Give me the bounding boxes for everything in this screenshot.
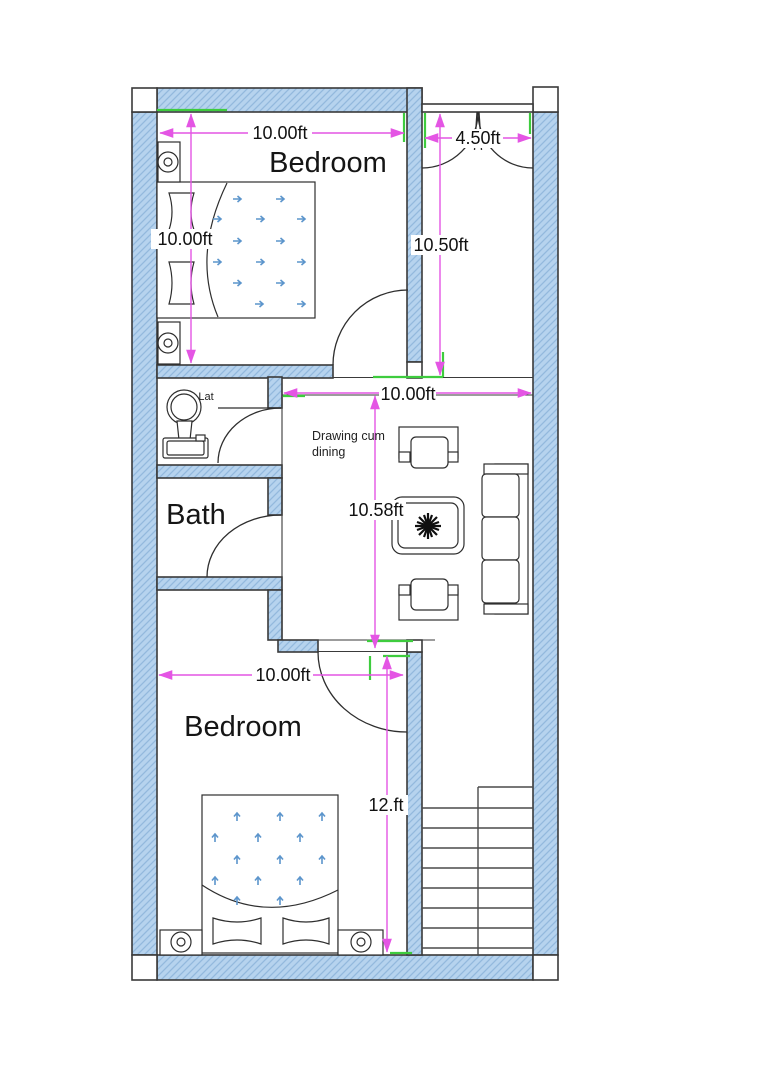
staircase [422, 787, 533, 955]
corner-column-top-left [132, 88, 157, 112]
nightstand [338, 930, 383, 955]
drawing-room-label: dining [312, 445, 345, 459]
dim-label: 4.50ft [455, 128, 500, 148]
drawing-room-label: Drawing cum [312, 429, 385, 443]
dim-label: 12.ft [368, 795, 403, 815]
corner-column-top-right [533, 87, 558, 112]
door-arc-icon [218, 408, 281, 463]
floor-plan-drawing: 10.00ft 10.00ft 4.50ft 10.50ft 10.00ft 1… [0, 0, 768, 1087]
dimension-entry-width: 4.50ft [425, 128, 531, 148]
wall-right [533, 112, 558, 955]
lat-door [218, 408, 281, 463]
wall-bath-right-upper [268, 478, 282, 515]
dimension-bedroom-bottom-width: 10.00ft [159, 665, 403, 685]
nightstand [160, 930, 202, 955]
sofa-cushion [482, 560, 519, 603]
corner-column-bottom-right [533, 955, 558, 980]
wall-lat-right-upper [268, 377, 282, 408]
wall-bottom [157, 955, 533, 980]
dimension-bedroom-bottom-height: 12.ft [364, 656, 408, 952]
armchair [399, 427, 458, 468]
dim-label: 10.00ft [157, 229, 212, 249]
bath-label: Bath [166, 499, 226, 531]
dimension-drawing-width: 10.00ft [284, 384, 531, 404]
wall-bedroom-bottom-right [407, 652, 422, 955]
wall-top [157, 88, 422, 112]
lat-label: Lat [198, 391, 213, 403]
dim-label: 10.58ft [348, 500, 403, 520]
sofa-cushion [482, 474, 519, 517]
pillow [283, 918, 329, 944]
bedroom-bottom-label: Bedroom [184, 711, 302, 743]
drawing-room-furniture [392, 427, 528, 620]
dim-label: 10.50ft [413, 235, 468, 255]
entrance-lintel [422, 104, 533, 112]
dim-label: 10.00ft [252, 123, 307, 143]
wall-below-bath [268, 590, 282, 640]
wall-bedroom-top-bottom [157, 365, 333, 378]
nightstand [158, 322, 180, 364]
sofa-cushion [482, 517, 519, 560]
armchair [399, 579, 458, 620]
wall-bedroom-hall-divider [407, 88, 422, 362]
pillow [213, 918, 261, 944]
sofa [482, 464, 528, 614]
nightstand [158, 142, 180, 182]
floor-plan-page: 10.00ft 10.00ft 4.50ft 10.50ft 10.00ft 1… [0, 0, 768, 1087]
pillow [169, 193, 194, 230]
dim-label: 10.00ft [255, 665, 310, 685]
door-arc-icon [318, 652, 407, 732]
door-arc-icon [333, 290, 408, 365]
bedroom-top-label: Bedroom [269, 147, 387, 179]
corner-column-bottom-left [132, 955, 157, 980]
bedroom-bottom-furniture [160, 795, 383, 955]
pillow [169, 262, 194, 304]
jamb-bedroom-top [407, 362, 422, 378]
dim-label: 10.00ft [380, 384, 435, 404]
wall-bath-bottom [157, 577, 282, 590]
dimension-bedroom-top-width: 10.00ft [160, 123, 404, 143]
wall-lat-bath-divider [157, 465, 282, 478]
wall-bedroom-bottom-top [278, 640, 318, 652]
